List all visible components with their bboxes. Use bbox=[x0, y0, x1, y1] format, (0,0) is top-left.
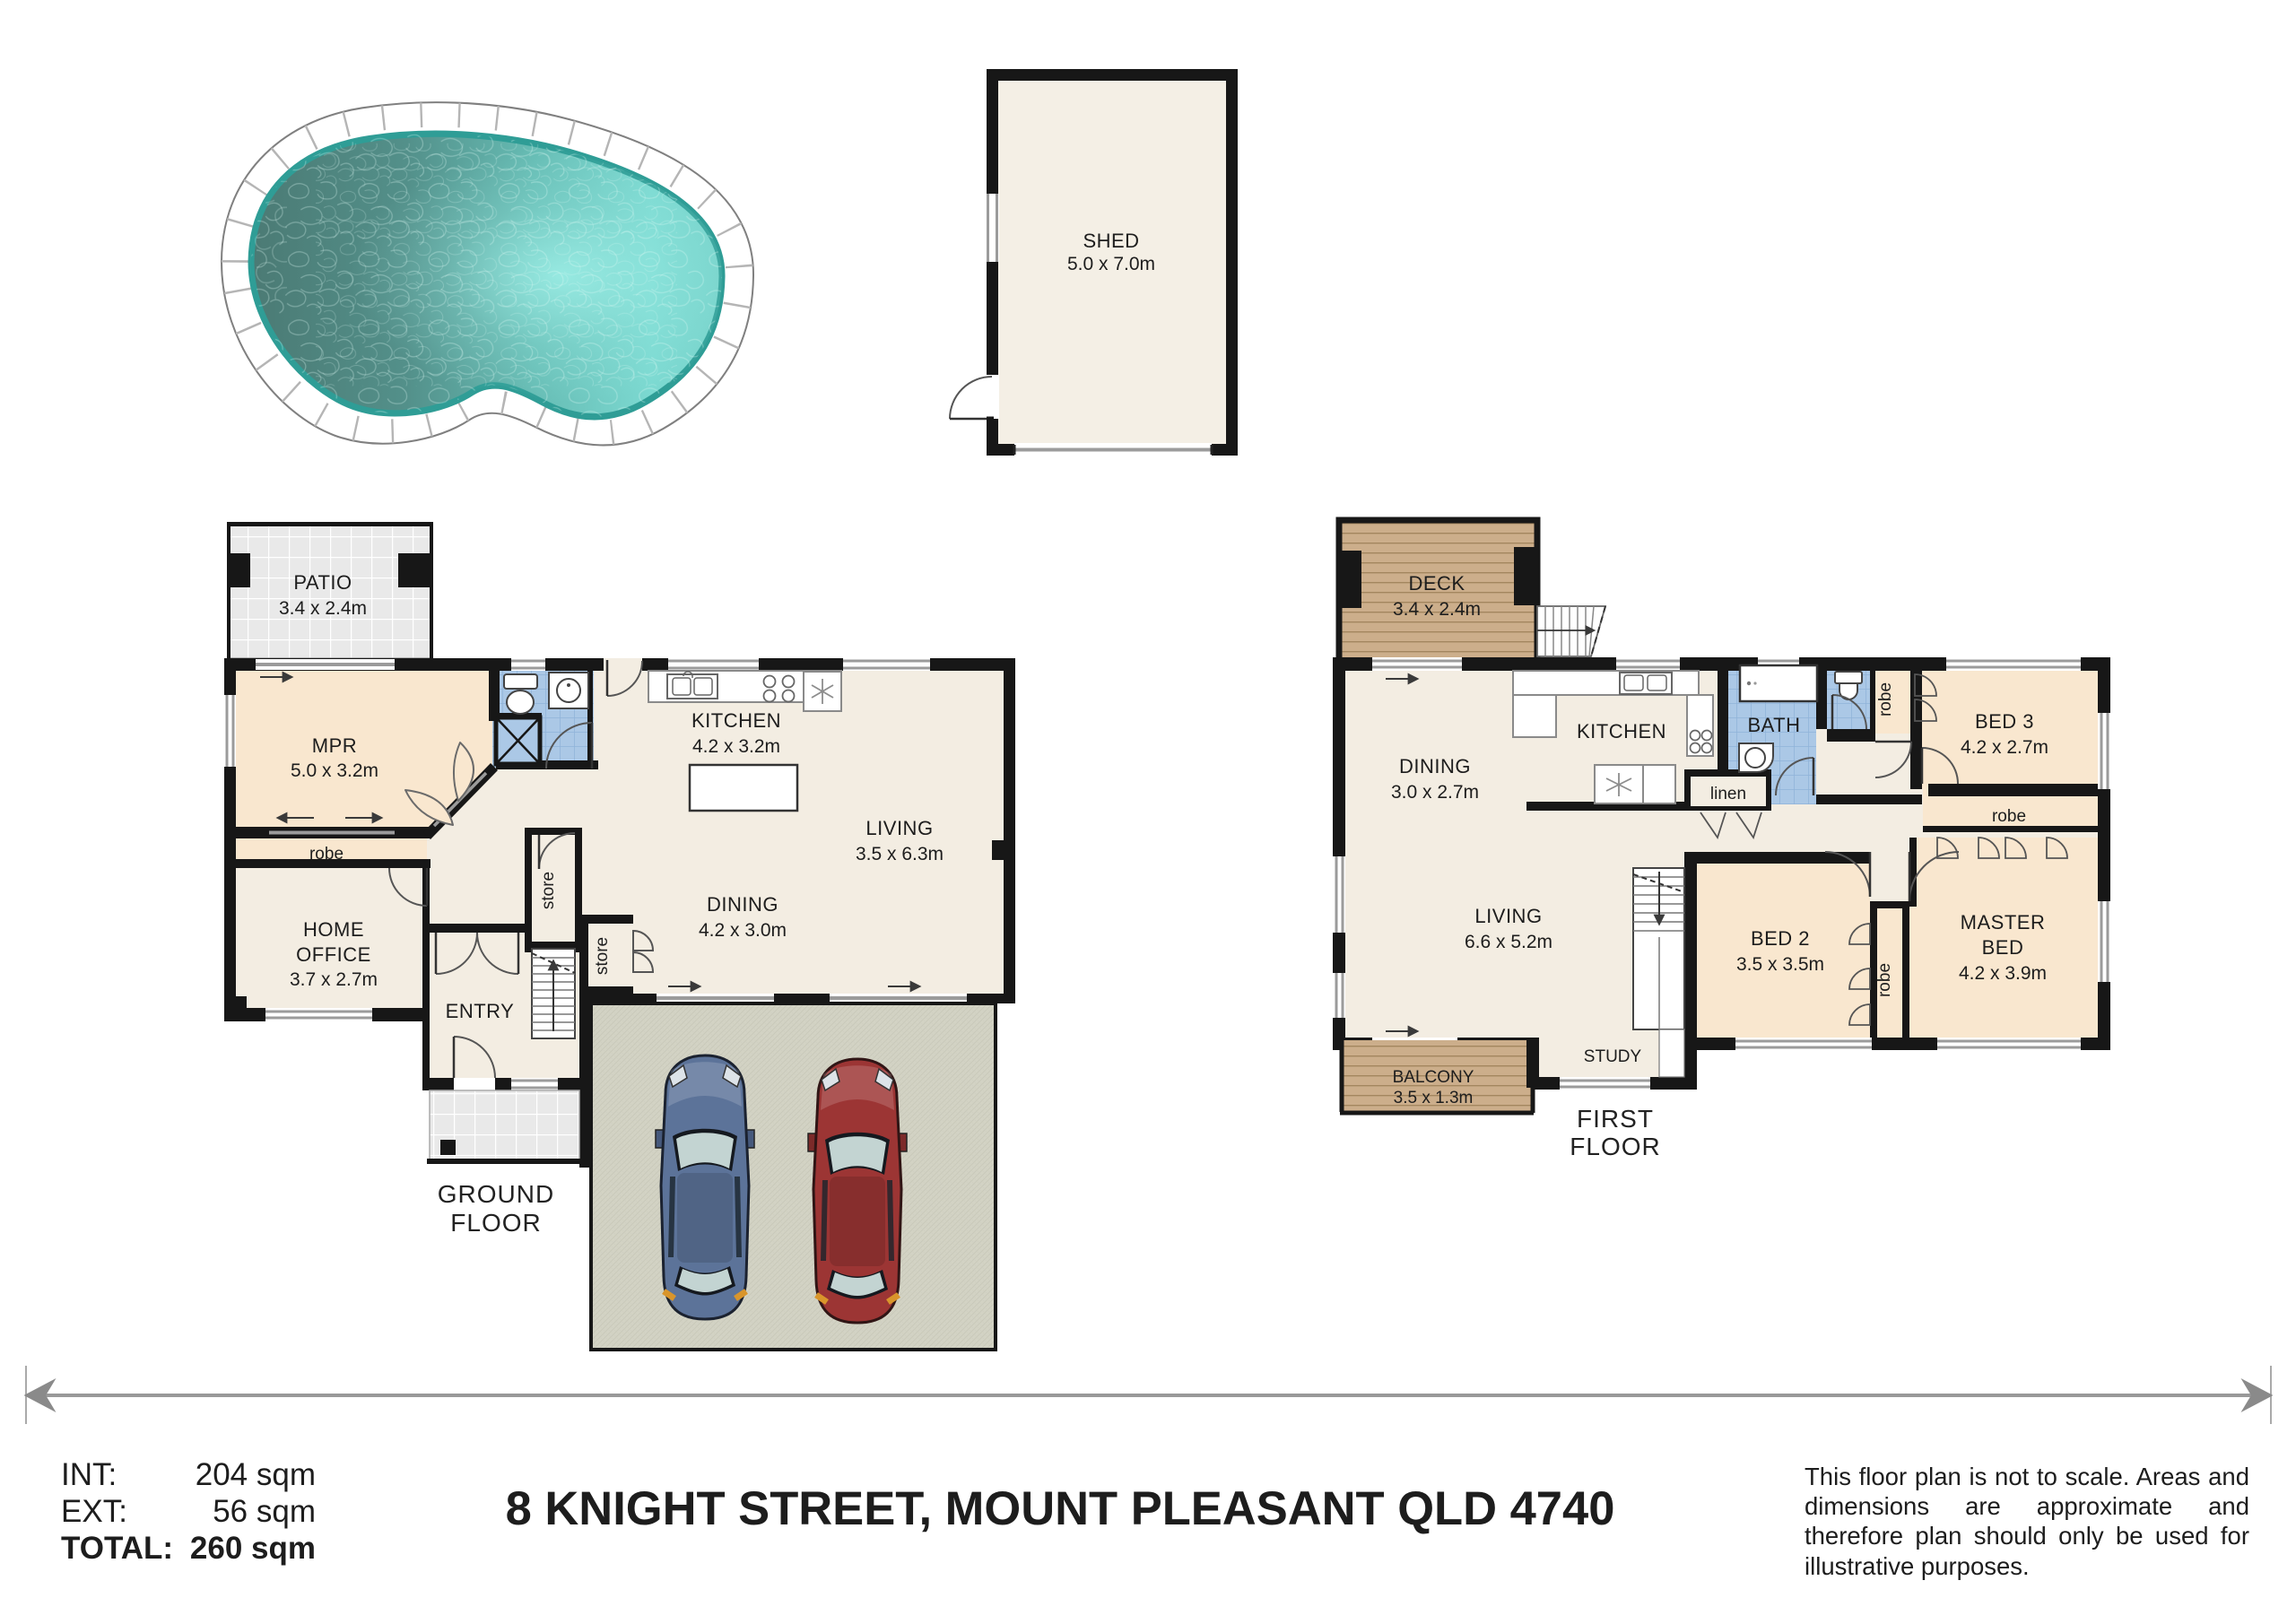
svg-text:3.4 x 2.4m: 3.4 x 2.4m bbox=[1393, 599, 1481, 620]
svg-text:6.6 x 5.2m: 6.6 x 5.2m bbox=[1465, 932, 1552, 952]
svg-text:3.5 x 1.3m: 3.5 x 1.3m bbox=[1394, 1089, 1474, 1107]
svg-text:4.2 x 2.7m: 4.2 x 2.7m bbox=[1961, 737, 2048, 758]
svg-text:robe: robe bbox=[1992, 807, 2026, 826]
svg-text:5.0 x 3.2m: 5.0 x 3.2m bbox=[291, 760, 378, 781]
svg-text:5.0 x 7.0m: 5.0 x 7.0m bbox=[1067, 254, 1155, 274]
svg-text:BED 2: BED 2 bbox=[1751, 927, 1810, 950]
svg-text:8 KNIGHT STREET, MOUNT PLEASAN: 8 KNIGHT STREET, MOUNT PLEASANT QLD 4740 bbox=[506, 1482, 1615, 1535]
svg-text:LIVING: LIVING bbox=[865, 817, 933, 839]
svg-text:FLOOR: FLOOR bbox=[1570, 1133, 1660, 1160]
svg-text:BALCONY: BALCONY bbox=[1393, 1068, 1474, 1087]
svg-text:SHED: SHED bbox=[1083, 230, 1139, 252]
svg-text:3.5 x 6.3m: 3.5 x 6.3m bbox=[856, 844, 944, 864]
svg-text:DINING: DINING bbox=[1399, 755, 1471, 777]
svg-text:EXT:: EXT: bbox=[61, 1494, 127, 1529]
svg-text:STUDY: STUDY bbox=[1584, 1047, 1642, 1066]
svg-text:MPR: MPR bbox=[312, 734, 357, 757]
svg-text:TOTAL:: TOTAL: bbox=[61, 1531, 173, 1566]
svg-text:GROUND: GROUND bbox=[438, 1180, 554, 1208]
svg-text:3.7 x 2.7m: 3.7 x 2.7m bbox=[290, 969, 378, 990]
svg-text:56 sqm: 56 sqm bbox=[213, 1494, 316, 1529]
svg-text:4.2 x 3.0m: 4.2 x 3.0m bbox=[699, 920, 787, 941]
svg-text:INT:: INT: bbox=[61, 1457, 117, 1492]
svg-text:store: store bbox=[593, 937, 612, 975]
svg-text:204 sqm: 204 sqm bbox=[196, 1457, 316, 1492]
svg-text:3.4 x 2.4m: 3.4 x 2.4m bbox=[279, 598, 367, 619]
svg-text:KITCHEN: KITCHEN bbox=[1577, 720, 1666, 743]
svg-text:BATH: BATH bbox=[1747, 714, 1800, 736]
svg-text:DINING: DINING bbox=[707, 893, 778, 916]
svg-text:4.2 x 3.9m: 4.2 x 3.9m bbox=[1959, 963, 2047, 984]
svg-text:4.2 x 3.2m: 4.2 x 3.2m bbox=[692, 736, 780, 757]
svg-text:linen: linen bbox=[1710, 785, 1746, 803]
svg-text:3.5 x 3.5m: 3.5 x 3.5m bbox=[1736, 954, 1824, 975]
svg-text:robe: robe bbox=[1876, 682, 1895, 716]
svg-text:FIRST: FIRST bbox=[1577, 1105, 1654, 1133]
svg-text:3.0 x 2.7m: 3.0 x 2.7m bbox=[1391, 782, 1479, 803]
svg-text:OFFICE: OFFICE bbox=[296, 943, 371, 966]
svg-text:HOME: HOME bbox=[303, 918, 364, 941]
svg-text:robe: robe bbox=[309, 845, 344, 864]
svg-text:LIVING: LIVING bbox=[1474, 905, 1542, 927]
svg-text:BED: BED bbox=[1982, 936, 2024, 959]
svg-text:ENTRY: ENTRY bbox=[446, 1000, 515, 1022]
svg-text:260 sqm: 260 sqm bbox=[190, 1531, 316, 1566]
svg-text:FLOOR: FLOOR bbox=[450, 1209, 541, 1237]
svg-text:robe: robe bbox=[1875, 963, 1894, 997]
svg-text:store: store bbox=[539, 872, 558, 909]
svg-text:BED 3: BED 3 bbox=[1975, 710, 2034, 733]
svg-text:MASTER: MASTER bbox=[1961, 911, 2046, 934]
svg-text:PATIO: PATIO bbox=[293, 571, 352, 594]
svg-text:DECK: DECK bbox=[1408, 572, 1465, 595]
svg-text:KITCHEN: KITCHEN bbox=[691, 709, 781, 732]
